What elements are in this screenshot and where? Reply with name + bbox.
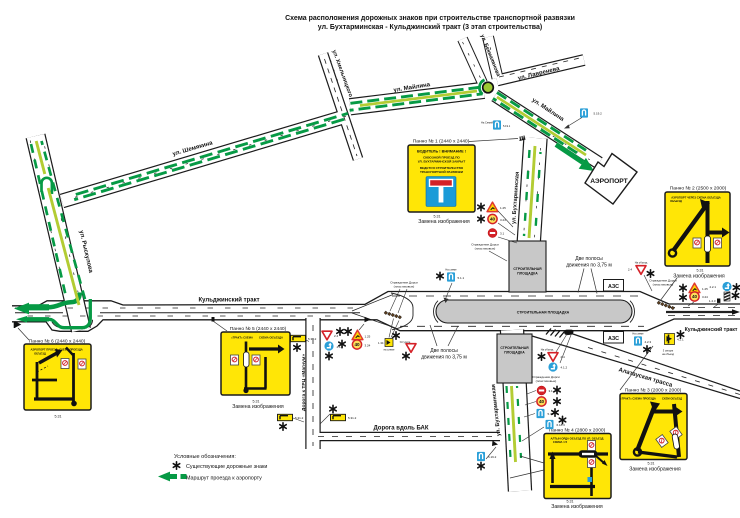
svg-text:АЗС: АЗС <box>608 336 619 342</box>
svg-text:Кульджинский тракт: Кульджинский тракт <box>198 297 259 304</box>
svg-text:Замена изображения: Замена изображения <box>629 467 681 473</box>
svg-text:Замена изображения: Замена изображения <box>232 404 284 410</box>
svg-text:СХЕМА ОБЪЕЗДА: СХЕМА ОБЪЕЗДА <box>259 336 283 340</box>
svg-text:Замена изображения: Замена изображения <box>673 274 725 280</box>
svg-text:На схеме: На схеме <box>632 332 644 336</box>
svg-text:5.31.2: 5.31.2 <box>308 337 317 341</box>
svg-text:АЭРОПОРТ: АЭРОПОРТ <box>590 178 628 185</box>
svg-text:5.31: 5.31 <box>253 400 260 404</box>
svg-text:Уступите: Уступите <box>400 340 411 344</box>
svg-text:5.19.1: 5.19.1 <box>503 124 511 128</box>
svg-text:4.1.2: 4.1.2 <box>561 366 568 370</box>
svg-text:5.31: 5.31 <box>648 462 655 466</box>
svg-text:Две полосы: Две полосы <box>575 256 603 262</box>
svg-text:Схема расположения дорожных зн: Схема расположения дорожных знаков при с… <box>285 14 575 22</box>
svg-text:«ТРАКТ» СХЕМА ПРОЕЗДА: «ТРАКТ» СХЕМА ПРОЕЗДА <box>620 397 656 401</box>
svg-text:(пластиковые): (пластиковые) <box>653 283 674 287</box>
svg-text:Две полосы: Две полосы <box>430 348 458 354</box>
svg-text:СХЕМА ПРОЕЗДА: СХЕМА ПРОЕЗДА <box>59 348 83 352</box>
svg-text:Панно № 1 (2440 х 2440): Панно № 1 (2440 х 2440) <box>413 139 470 145</box>
svg-text:АЛТЫН ОРДА ОБЪЕЗД ПО УЛ. ОБЪЕЗ: АЛТЫН ОРДА ОБЪЕЗД ПО УЛ. ОБЪЕЗД <box>551 437 604 441</box>
svg-text:движения по 3,75 м: движения по 3,75 м <box>566 263 612 269</box>
svg-text:5.31: 5.31 <box>55 415 62 419</box>
svg-text:«ТРАКТ» СХЕМА: «ТРАКТ» СХЕМА <box>231 336 253 340</box>
svg-text:3.1: 3.1 <box>500 232 505 236</box>
svg-text:Условные обозначения:: Условные обозначения: <box>174 454 236 460</box>
svg-text:(пластиковые): (пластиковые) <box>475 247 496 251</box>
svg-text:3.24: 3.24 <box>702 295 708 299</box>
svg-text:На схеме: На схеме <box>445 268 457 272</box>
svg-text:АЭРОПОРТ ПРОЕЗД: АЭРОПОРТ ПРОЕЗД <box>31 348 58 352</box>
svg-text:4.1.2: 4.1.2 <box>337 345 344 349</box>
svg-text:АЭРОПОРТ ЧЕРЕЗ СХЕМА ОБЪЕЗДА: АЭРОПОРТ ЧЕРЕЗ СХЕМА ОБЪЕЗДА <box>671 196 720 200</box>
svg-text:Панно № 2 (2500 х 2000): Панно № 2 (2500 х 2000) <box>670 186 727 192</box>
svg-text:на объезд: на объезд <box>662 352 675 356</box>
svg-text:1.25: 1.25 <box>702 287 708 291</box>
svg-text:5.31.2: 5.31.2 <box>348 416 357 420</box>
svg-text:3 секции: 3 секции <box>663 349 674 353</box>
svg-text:3.24: 3.24 <box>365 344 371 348</box>
svg-text:5.31: 5.31 <box>697 269 704 273</box>
svg-text:5.31: 5.31 <box>434 215 441 219</box>
svg-text:6.18.3: 6.18.3 <box>557 423 566 427</box>
svg-text:1.25: 1.25 <box>365 335 371 339</box>
svg-text:Замена изображения: Замена изображения <box>418 219 470 225</box>
svg-text:Дорога вдоль БАК: Дорога вдоль БАК <box>373 426 428 432</box>
svg-text:ПЛОЩАДКА: ПЛОЩАДКА <box>517 272 538 276</box>
svg-text:СХЕМ ОБЪЕЗД: СХЕМ ОБЪЕЗД <box>662 397 682 401</box>
svg-text:Панно № 5 (2440 х 2440): Панно № 5 (2440 х 2440) <box>230 326 287 332</box>
svg-text:ВОДИТЕЛЬ ! ВНИМАНИЕ !: ВОДИТЕЛЬ ! ВНИМАНИЕ ! <box>417 150 466 154</box>
svg-text:1.25: 1.25 <box>500 206 506 210</box>
svg-text:4.2.1: 4.2.1 <box>709 285 716 289</box>
svg-text:1.4.3: 1.4.3 <box>709 299 716 303</box>
svg-text:3.1: 3.1 <box>549 389 554 393</box>
svg-text:ОБЪЕЗД: ОБЪЕЗД <box>670 199 682 203</box>
svg-text:2.4: 2.4 <box>628 268 633 272</box>
svg-text:4.2.3: 4.2.3 <box>645 340 652 344</box>
svg-text:Кульджинский тракт: Кульджинский тракт <box>685 326 738 333</box>
svg-text:УЛ. БУХТАРМИНСКОЙ ЗАКРЫТ: УЛ. БУХТАРМИНСКОЙ ЗАКРЫТ <box>418 160 466 164</box>
svg-text:На объезд: На объезд <box>541 348 554 352</box>
svg-text:(пластиковые): (пластиковые) <box>536 379 557 383</box>
svg-text:Панно № 4 (2800 х 2000): Панно № 4 (2800 х 2000) <box>549 428 606 434</box>
svg-text:СТРОИТЕЛЬНАЯ ПЛОЩАДКА: СТРОИТЕЛЬНАЯ ПЛОЩАДКА <box>517 311 570 315</box>
svg-text:Существующие дорожные знаки: Существующие дорожные знаки <box>186 464 267 470</box>
svg-text:Панно № 3 (2000 х 2000): Панно № 3 (2000 х 2000) <box>625 388 682 394</box>
svg-text:движения по 3,75 м: движения по 3,75 м <box>421 355 467 361</box>
svg-text:2.4: 2.4 <box>561 355 566 359</box>
svg-text:ОБЪЕЗД: ОБЪЕЗД <box>34 352 46 356</box>
svg-text:4.2.1: 4.2.1 <box>677 338 684 342</box>
svg-text:На объезд: На объезд <box>635 261 648 265</box>
svg-text:АЗС: АЗС <box>608 284 619 290</box>
svg-text:на схеме: на схеме <box>384 349 395 352</box>
svg-text:СТРОИТЕЛЬНАЯ: СТРОИТЕЛЬНАЯ <box>500 346 529 350</box>
svg-text:(пластиковые): (пластиковые) <box>394 285 415 289</box>
svg-text:СТРОИТЕЛЬНАЯ: СТРОИТЕЛЬНАЯ <box>513 267 542 271</box>
svg-text:1.34: 1.34 <box>378 341 384 345</box>
svg-text:2.4: 2.4 <box>334 334 339 338</box>
svg-text:Маршрут проезда к аэропорту: Маршрут проезда к аэропорту <box>186 476 262 482</box>
svg-text:СХЕМА 1:5: СХЕМА 1:5 <box>553 440 568 444</box>
svg-text:ул. Бухтарминская - Кульджинск: ул. Бухтарминская - Кульджинский тракт (… <box>318 23 542 31</box>
svg-text:Замена изображения: Замена изображения <box>551 504 603 510</box>
svg-text:5.19.2: 5.19.2 <box>594 112 603 116</box>
svg-text:5.1.1: 5.1.1 <box>458 276 465 280</box>
svg-text:На Семей: На Семей <box>481 121 494 125</box>
svg-text:ТРАНСПОРТНОЙ РАЗВЯЗКИ: ТРАНСПОРТНОЙ РАЗВЯЗКИ <box>420 170 464 174</box>
svg-text:Дорога к ТРЦ «Магнум»: Дорога к ТРЦ «Магнум» <box>301 354 307 411</box>
svg-text:5.19.2: 5.19.2 <box>488 455 497 459</box>
svg-text:5.31: 5.31 <box>567 500 574 504</box>
svg-text:ПЛОЩАДКА: ПЛОЩАДКА <box>504 351 525 355</box>
